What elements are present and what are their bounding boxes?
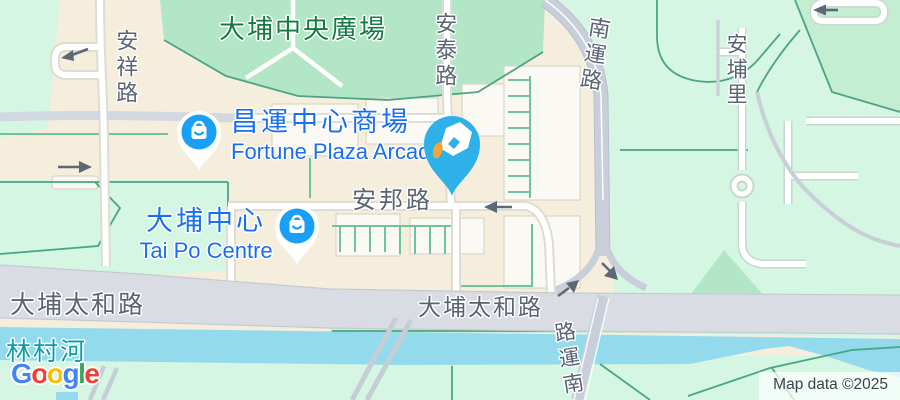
google-logo-letter: g bbox=[63, 358, 79, 389]
marker-tai-po-centre-shopping-pin[interactable] bbox=[273, 203, 321, 267]
label-tai-po-centre[interactable]: 大埔中心 Tai Po Centre bbox=[138, 207, 274, 263]
label-on-tai-road: 安泰路 bbox=[432, 12, 456, 90]
label-fortune-plaza[interactable]: 昌運中心商場 Fortune Plaza Arcade bbox=[231, 108, 443, 164]
map-attribution: Map data ©2025 bbox=[759, 372, 900, 400]
label-tai-po-tai-wo-road-west: 大埔太和路 bbox=[10, 292, 145, 320]
google-logo[interactable]: Google bbox=[11, 358, 98, 390]
label-central-plaza: 大埔中央廣場 bbox=[219, 15, 387, 44]
label-fortune-plaza-en[interactable]: Fortune Plaza Arcade bbox=[231, 140, 443, 164]
label-on-cheung-road: 安祥路 bbox=[113, 29, 137, 107]
label-on-po-lane: 安埔里 bbox=[724, 33, 747, 108]
label-tai-po-centre-en[interactable]: Tai Po Centre bbox=[138, 239, 274, 263]
label-tai-po-centre-zh[interactable]: 大埔中心 bbox=[138, 207, 274, 237]
google-logo-letter: o bbox=[47, 358, 63, 389]
marker-selected-place-pin[interactable] bbox=[420, 114, 484, 198]
map-canvas[interactable]: 大埔中央廣場 昌運中心商場 Fortune Plaza Arcade 大埔中心 … bbox=[0, 0, 900, 400]
label-fortune-plaza-zh[interactable]: 昌運中心商場 bbox=[231, 108, 443, 138]
google-logo-letter: e bbox=[84, 358, 98, 389]
label-tai-po-tai-wo-road-east: 大埔太和路 bbox=[418, 295, 543, 320]
google-logo-letter: o bbox=[31, 358, 47, 389]
google-logo-letter: G bbox=[11, 358, 31, 389]
marker-fortune-plaza-shopping-pin[interactable] bbox=[175, 109, 223, 173]
